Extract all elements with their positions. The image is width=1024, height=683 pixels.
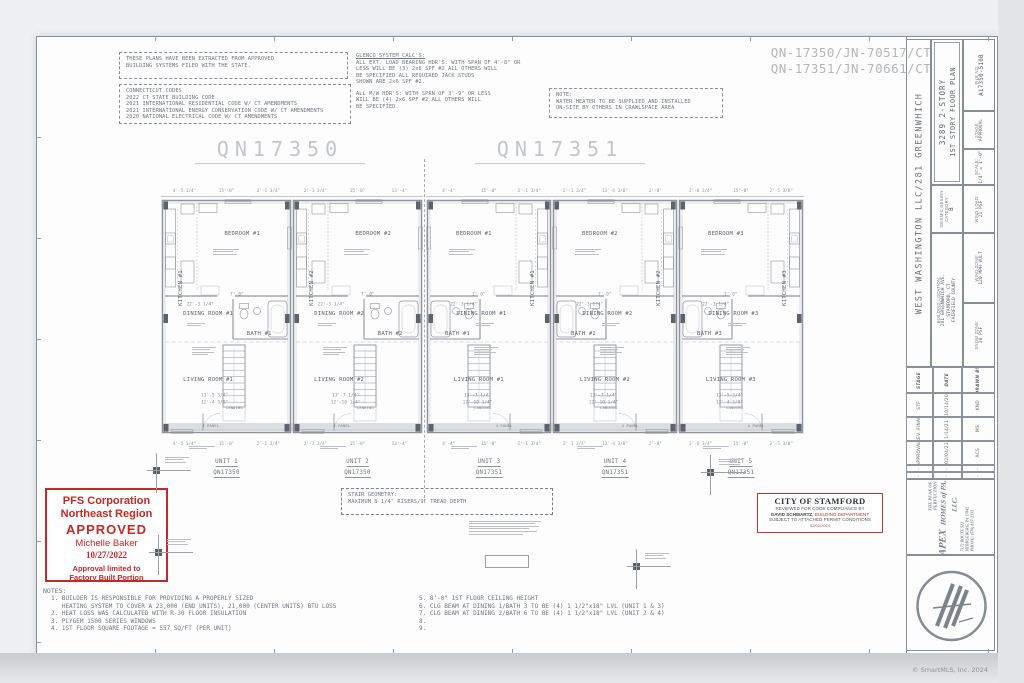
detail-callout xyxy=(719,457,743,466)
unit-label-leaders xyxy=(451,444,477,451)
code-item: 2020 NATIONAL ELECTRICAL CODE W/ CT AMEN… xyxy=(126,114,344,121)
seismic-cell: SEISMIC DESIGN CATEGORY:B xyxy=(931,185,963,233)
field-value: 21 PSF xyxy=(979,201,985,218)
bedroom-annotations xyxy=(344,247,370,256)
detail-line xyxy=(149,552,193,553)
revision-value-text: APPROVAL xyxy=(917,441,922,465)
door-type-label: 4 PANEL xyxy=(748,424,765,428)
codes-box: CONNECTICUT CODES 2022 CT STATE BUILDING… xyxy=(119,84,351,124)
apex-name-row: APEXHOMES of PA, LLC. xyxy=(937,479,960,555)
under-dimension: 13'-4" xyxy=(392,442,408,447)
apex-address-line: PHONE: (570) 837-2333 xyxy=(970,506,975,551)
dining-room-label: DINING ROOM #3 xyxy=(708,311,758,317)
field-value: APPROVAL xyxy=(979,119,985,141)
top-dimension: 15'-0" xyxy=(733,189,749,194)
revision-cell: - xyxy=(933,472,962,479)
bedroom-label: BEDROOM #1 xyxy=(456,231,492,237)
glenco-line: BE SPECIFIED. xyxy=(356,104,551,111)
apex-logo xyxy=(906,555,995,651)
note-line: 6. CLG BEAM AT DINING 1/BATH 3 TO BE (4)… xyxy=(419,603,665,611)
door-type-label: 4 PANEL xyxy=(202,424,219,428)
detail-line xyxy=(158,535,159,575)
revision-cell: - xyxy=(933,465,962,472)
revision-value-text: - xyxy=(917,468,922,470)
stair-geometry-line: MAXIMUM 8 1/4" RISERS/9" TREAD DEPTH xyxy=(348,499,546,506)
note-line: 8. xyxy=(419,618,665,626)
location-line: FAIRFIELD COUNTY xyxy=(952,278,958,322)
revision-header-cell: STAGE xyxy=(906,367,933,393)
apex-name2-text: HOMES of PA, LLC. xyxy=(938,477,960,528)
building-centerline xyxy=(424,159,425,503)
scan-edge-band xyxy=(0,653,1024,683)
bath-label: BATH #2 xyxy=(571,331,596,337)
kitchen-label: KITCHEN #2 xyxy=(656,270,662,306)
revision-value-text: 10/14/20 xyxy=(945,394,950,416)
interior-dimension: 7'-0" xyxy=(472,292,486,297)
wind-zone-cell-content: WIND ZONE:120 MPH VULT xyxy=(963,233,995,303)
living-room-label: LIVING ROOM #1 xyxy=(183,377,233,383)
note-line: 7. CLG BEAM AT DINING 2/BATH 6 TO BE (4)… xyxy=(419,610,665,618)
interior-dimension: 22'-3 1/4" xyxy=(187,301,214,306)
stage-cell-content: STAGE:APPROVAL xyxy=(963,111,995,149)
bedroom-annotations xyxy=(213,247,239,256)
notes-title: NOTES: xyxy=(43,587,66,595)
revision-cell: 02/04/21 xyxy=(933,441,962,465)
revision-value-text: STF xyxy=(917,401,922,410)
under-dimension: 2'-1 3/4" xyxy=(257,442,280,447)
client-name-cell: WEST WASHINGTON LLC/281 GREENWHICH xyxy=(906,39,931,367)
detail-line xyxy=(147,470,191,471)
apex-tagline: THE PEAK OFPERFECTION xyxy=(927,481,937,511)
top-dimension: 2'-1 3/4" xyxy=(257,189,280,194)
unit-name-label: UNIT 4 xyxy=(604,459,627,467)
wind-load-cell: WIND LOAD:21 PSF xyxy=(963,185,995,233)
top-dimension: 15'-0" xyxy=(481,189,497,194)
bath-label: BATH #1 xyxy=(445,331,470,337)
glenco-line: SHOWN ARE 2x6 SPF #2. xyxy=(356,79,551,86)
top-dimension: 2'-8" xyxy=(649,189,662,194)
living-annotations xyxy=(726,345,750,357)
living-annotations xyxy=(600,345,624,357)
kitchen-label: KITCHEN #1 xyxy=(178,270,184,306)
bottom-dimension: 12'-10 1/4" xyxy=(331,400,361,405)
living-room-label: LIVING ROOM #2 xyxy=(314,377,364,383)
revision-header-text: DATE xyxy=(945,373,950,387)
scale-cell: SCALE:1/4" = 1'-0" xyxy=(963,149,995,185)
unit-label-leaders xyxy=(320,444,346,451)
top-dimension: 4'-4" xyxy=(442,189,455,194)
revision-cell: ACS xyxy=(962,441,995,465)
apex-logo-icon xyxy=(907,556,996,652)
stamford-line: SUBJECT TO ATTACHED PERMIT CONDITIONS xyxy=(758,517,882,523)
extract-notice-box: THESE PLANS HAVE BEEN EXTRACTED FROM APP… xyxy=(119,52,348,79)
dimension-line xyxy=(426,196,804,197)
sheet-title: 1ST STORY FLOOR PLAN xyxy=(949,67,957,157)
living-annotations xyxy=(323,345,347,357)
note-line: 9. xyxy=(419,625,665,633)
unit-label-leaders xyxy=(577,444,603,451)
revision-header-cell: DRAWN BY xyxy=(962,367,995,393)
bottom-dimension: 13'-5 3/4" xyxy=(201,393,228,398)
client-name-cell-content: WEST WASHINGTON LLC/281 GREENWHICH xyxy=(906,39,931,367)
living-annotations xyxy=(192,345,216,357)
apex-tagline-line: THE PEAK OF xyxy=(927,481,932,511)
top-dimension: 2'-1 3/4" xyxy=(563,189,586,194)
pfs-line: Northeast Region xyxy=(47,508,166,521)
revision-value-text: 02/04/21 xyxy=(945,442,950,464)
bottom-dimension: 13'-7 1/4" xyxy=(464,393,491,398)
revision-value-text: REV. FINAL xyxy=(917,417,922,441)
revision-header-text: DRAWN BY xyxy=(976,367,981,393)
revision-cell: - xyxy=(906,472,933,479)
unit-floor-plan: BEDROOM #2KITCHEN #2DINING ROOM #2BATH #… xyxy=(292,199,423,434)
building-location-cell-content: BUILDING LOCATION:281 GREENWHICH AVE.STA… xyxy=(931,233,963,367)
living-room-label: LIVING ROOM #3 xyxy=(706,377,756,383)
seismic-cell-content: SEISMIC DESIGN CATEGORY:B xyxy=(931,185,963,233)
interior-dimension: 22'-3 1/4" xyxy=(576,301,603,306)
bedroom-label: BEDROOM #2 xyxy=(582,231,618,237)
unit-floor-plan: BEDROOM #2KITCHEN #2DINING ROOM #2BATH #… xyxy=(552,199,678,434)
revision-cell: 10/14/20 xyxy=(933,393,962,417)
field-value: 30 PSF xyxy=(979,327,985,344)
kitchen-label: KITCHEN #3 xyxy=(782,270,788,306)
connection-detail xyxy=(627,549,675,591)
connection-detail xyxy=(701,455,749,497)
top-dimension: 15'-0" xyxy=(350,189,366,194)
unit-model-label: QN17351 xyxy=(602,470,629,478)
bottom-dimension: 12'-4 3/8" xyxy=(201,400,228,405)
dining-room-label: DINING ROOM #2 xyxy=(582,311,632,317)
field-value: 1/4" = 1'-0" xyxy=(979,150,985,183)
landing-label: LANDING xyxy=(726,406,743,410)
snow-zone-cell-content: SNOW ZONE:30 PSF xyxy=(963,303,995,367)
dining-room-label: DINING ROOM #1 xyxy=(183,311,233,317)
top-dimension: 4'-5 1/4" xyxy=(173,189,196,194)
unit-floor-plan: BEDROOM #1KITCHEN #1DINING ROOM #1BATH #… xyxy=(161,199,292,434)
door-type-label: 4 PANEL xyxy=(333,424,350,428)
detail-callout xyxy=(165,455,189,464)
top-dimension: 2'-5 3/8" xyxy=(770,189,793,194)
pfs-line: PFS Corporation xyxy=(47,495,166,508)
top-dimension: 15'-0" xyxy=(219,189,235,194)
apex-address: 7172 ROUTE 522MIDDLEBURG, PA 17842PHONE:… xyxy=(960,506,974,551)
unit-floor-plan: BEDROOM #1KITCHEN #1DINING ROOM #1BATH #… xyxy=(426,199,552,434)
scale-cell-content: SCALE:1/4" = 1'-0" xyxy=(963,149,995,185)
dimension-line xyxy=(161,196,423,197)
note-line: 2. HEAT LOSS WAS CALCULATED WITH R-30 FL… xyxy=(51,610,336,618)
under-dimension: 15'-0" xyxy=(481,442,497,447)
stamford-date: 02/02/2024 xyxy=(758,523,882,528)
revision-value-text: ACS xyxy=(976,448,981,458)
file-no-cell: FILE NO.A17350-510B xyxy=(963,39,995,111)
building-location-cell: BUILDING LOCATION:281 GREENWHICH AVE.STA… xyxy=(931,233,963,367)
stamford-reviewer-name: DAVID SCHWARTZ, xyxy=(771,512,814,517)
living-room-label: LIVING ROOM #1 xyxy=(454,377,504,383)
apex-tagline-line: PERFECTION xyxy=(932,481,937,511)
under-dimension: 15'-0" xyxy=(219,442,235,447)
under-dimension: 13'-4 3/8" xyxy=(602,442,628,447)
bedroom-annotations xyxy=(575,247,601,256)
interior-dimension: 7'-0" xyxy=(361,292,375,297)
snow-zone-cell: SNOW ZONE:30 PSF xyxy=(963,303,995,367)
detail-line xyxy=(156,453,157,493)
plan-title-qn17350: QN17350 xyxy=(195,137,365,164)
unit-model-label: QN17350 xyxy=(344,470,371,478)
detail-line xyxy=(627,566,671,567)
under-dimension: 15'-0" xyxy=(350,442,366,447)
detail-line xyxy=(701,472,745,473)
unit-name-label: UNIT 1 xyxy=(215,459,238,467)
landing-label: LANDING xyxy=(600,406,617,410)
apex-firm-content: THE PEAK OFPERFECTIONAPEXHOMES of PA, LL… xyxy=(906,479,995,555)
water-note-line: ON-SITE BY OTHERS IN CRAWLSPACE AREA xyxy=(556,105,716,112)
bath-label: BATH #2 xyxy=(378,331,403,337)
revision-value-text: 1/14/21 xyxy=(945,420,950,439)
dining-annotations xyxy=(476,321,494,328)
dining-annotations xyxy=(318,321,336,328)
field-value: A17350-510B xyxy=(979,54,985,96)
revision-header-text: STAGE xyxy=(917,372,922,389)
interior-dimension: 7'-0" xyxy=(724,292,738,297)
bedroom-label: BEDROOM #1 xyxy=(224,231,260,237)
detail-callout xyxy=(167,537,191,546)
landing-label: LANDING xyxy=(474,406,491,410)
plan-title-qn17351: QN17351 xyxy=(475,137,645,164)
interior-dimension: 22'-3 1/4" xyxy=(318,301,345,306)
top-dimension: 2'-1 3/4" xyxy=(304,189,327,194)
note-line: 4. 1ST FLOOR SQUARE FOOTAGE = 557 SQ/FT … xyxy=(51,625,336,633)
unit-model-label: QN17351 xyxy=(476,470,503,478)
kitchen-label: KITCHEN #2 xyxy=(309,270,315,306)
interior-dimension: 7'-0" xyxy=(230,292,244,297)
city-of-stamford-stamp: CITY OF STAMFORD REVIEWED FOR CODE COMPL… xyxy=(757,493,883,533)
note-line: 5. 8'-0" 1ST FLOOR CEILING HEIGHT xyxy=(419,595,665,603)
door-type-label: 4 PANEL xyxy=(622,424,639,428)
model-cell-content: 3289 2-STORY1ST STORY FLOOR PLAN xyxy=(931,39,963,185)
bath-label: BATH #1 xyxy=(247,331,272,337)
watermark-credit: © SmartMLS, Inc. 2024 xyxy=(912,666,988,674)
dining-room-label: DINING ROOM #1 xyxy=(456,311,506,317)
revision-header-cell: DATE xyxy=(933,367,962,393)
revision-cell: APPROVAL xyxy=(906,441,933,465)
interior-dimension: 7'-0" xyxy=(598,292,612,297)
field-value: 120 MPH VULT xyxy=(979,251,985,284)
glenco-paragraph-2: ALL M/W HDR'S: WITH SPAN OF 3'-9" OR LES… xyxy=(356,91,551,111)
stage-cell: STAGE:APPROVAL xyxy=(963,111,995,149)
under-dimension: 15'-0" xyxy=(733,442,749,447)
bottom-dimension: 13'-7 1/4" xyxy=(332,393,359,398)
unit-label-leaders xyxy=(189,444,215,451)
landing-label: LANDING xyxy=(357,406,374,410)
detail-line xyxy=(636,549,637,589)
extract-notice-line: BUILDING SYSTEMS FILED WITH THE STATE. xyxy=(126,63,341,70)
wind-zone-cell: WIND ZONE:120 MPH VULT xyxy=(963,233,995,303)
revision-value-text: MS xyxy=(976,425,981,432)
unit-name-label: UNIT 2 xyxy=(346,459,369,467)
revision-cell: - xyxy=(962,465,995,472)
file-no-cell-content: FILE NO.A17350-510B xyxy=(963,39,995,111)
revision-value-text: - xyxy=(976,468,981,470)
unit-floor-plan: BEDROOM #3KITCHEN #3DINING ROOM #3BATH #… xyxy=(678,199,804,434)
revision-cell: REV. FINAL xyxy=(906,417,933,441)
detail-figure xyxy=(485,555,529,568)
drawing-sheet: THESE PLANS HAVE BEEN EXTRACTED FROM APP… xyxy=(36,36,998,654)
revision-cell: MS xyxy=(962,417,995,441)
scan-edge-band-right xyxy=(998,0,1024,683)
codes-list: 2022 CT STATE BUILDING CODE2021 INTERNAT… xyxy=(126,95,344,121)
note-line: 1. BUILDER IS RESPONSIBLE FOR PROVIDING … xyxy=(51,595,336,603)
door-type-label: 4 PANEL xyxy=(496,424,513,428)
under-dimension: 2'-8" xyxy=(649,442,662,447)
top-dimension: 13'-4" xyxy=(392,189,408,194)
scanned-floor-plan-sheet: { "header": { "extract_notice": ["THESE … xyxy=(0,0,1024,683)
living-room-label: LIVING ROOM #2 xyxy=(580,377,630,383)
unit-model-label: QN17350 xyxy=(213,470,240,478)
dining-annotations xyxy=(728,321,746,328)
revision-cell: - xyxy=(906,465,933,472)
bedroom-annotations xyxy=(701,247,727,256)
top-dimension: 2'-1 3/4" xyxy=(518,189,541,194)
unit-name-label: UNIT 3 xyxy=(478,459,501,467)
client-name: WEST WASHINGTON LLC/281 GREENWHICH xyxy=(914,92,924,314)
dining-annotations xyxy=(187,321,205,328)
connection-detail xyxy=(149,535,197,577)
living-annotations xyxy=(474,345,498,357)
stamford-title: CITY OF STAMFORD xyxy=(758,496,882,506)
revision-cell: 1/14/21 xyxy=(933,417,962,441)
revision-cell: - xyxy=(962,472,995,479)
interior-dimension: 22'-3 1/4" xyxy=(702,301,729,306)
connection-detail xyxy=(147,453,195,495)
detail-line xyxy=(710,455,711,495)
misc-detail-block xyxy=(465,519,551,569)
field-value: B xyxy=(949,207,955,211)
bottom-dimension: 12'-10 1/4" xyxy=(589,400,619,405)
bath-label: BATH #3 xyxy=(697,331,722,337)
bedroom-label: BEDROOM #2 xyxy=(355,231,391,237)
bottom-dimension: 12'-10 1/4" xyxy=(463,400,493,405)
apex-firm: THE PEAK OFPERFECTIONAPEXHOMES of PA, LL… xyxy=(906,479,995,555)
notes-right-column: 5. 8'-0" 1ST FLOOR CEILING HEIGHT6. CLG … xyxy=(419,595,665,633)
notes-left-column: 1. BUILDER IS RESPONSIBLE FOR PROVIDING … xyxy=(51,595,336,633)
detail-callout xyxy=(645,551,669,560)
detail-text xyxy=(469,519,541,536)
under-dimension: 2'-1 3/4" xyxy=(518,442,541,447)
dining-annotations xyxy=(602,321,620,328)
stamford-department: BUILDING DEPARTMENT xyxy=(814,512,869,517)
revision-cell: STF xyxy=(906,393,933,417)
bedroom-label: BEDROOM #3 xyxy=(708,231,744,237)
bottom-dimension: 13'-5 3/4" xyxy=(716,393,743,398)
kitchen-label: KITCHEN #1 xyxy=(530,270,536,306)
wind-load-cell-content: WIND LOAD:21 PSF xyxy=(963,185,995,233)
revision-value-text: - xyxy=(945,475,950,477)
glenco-paragraph-1: ALL EXT. LOAD BEARING HDR'S: WITH SPAN O… xyxy=(356,60,551,86)
border-ticks-top xyxy=(37,37,997,41)
top-dimension: 2'-6 3/4" xyxy=(689,189,712,194)
revision-cell: KND xyxy=(962,393,995,417)
bedroom-annotations xyxy=(449,247,475,256)
revision-value-text: - xyxy=(976,475,981,477)
revision-value-text: - xyxy=(945,468,950,470)
bottom-dimension: 13'-7 1/4" xyxy=(590,393,617,398)
apex-name-text: APEX xyxy=(937,528,948,556)
model-cell: 3289 2-STORY1ST STORY FLOOR PLAN xyxy=(931,39,963,185)
model-number: 3289 2-STORY xyxy=(938,79,947,145)
field-label: SEISMIC DESIGN CATEGORY: xyxy=(939,185,949,233)
revision-value-text: - xyxy=(917,475,922,477)
glenco-calcs-note: GLENCO SYSTEM CALC'S: ALL EXT. LOAD BEAR… xyxy=(356,53,551,110)
bottom-dimension: 12'-4 3/8" xyxy=(716,400,743,405)
revision-value-text: KND xyxy=(976,400,981,410)
top-dimension: 13'-4 3/8" xyxy=(602,189,628,194)
border-ticks-left xyxy=(37,37,41,653)
water-heater-note-box: NOTE: WATER HEATER TO BE SUPPLIED AND IN… xyxy=(549,88,723,118)
under-dimension: 2'-5 3/8" xyxy=(770,442,793,447)
landing-label: LANDING xyxy=(226,406,243,410)
stair-geometry-box: STAIR GEOMETRY: MAXIMUM 8 1/4" RISERS/9"… xyxy=(341,488,553,515)
interior-dimension: 22'-3 1/4" xyxy=(450,301,477,306)
dining-room-label: DINING ROOM #2 xyxy=(314,311,364,317)
unit-label-leaders xyxy=(703,444,729,451)
note-line: 3. PLYGEM 1500 SERIES WINDOWS xyxy=(51,618,336,626)
note-line: HEATING SYSTEM TO COVER A 23,000 (END UN… xyxy=(51,603,336,611)
